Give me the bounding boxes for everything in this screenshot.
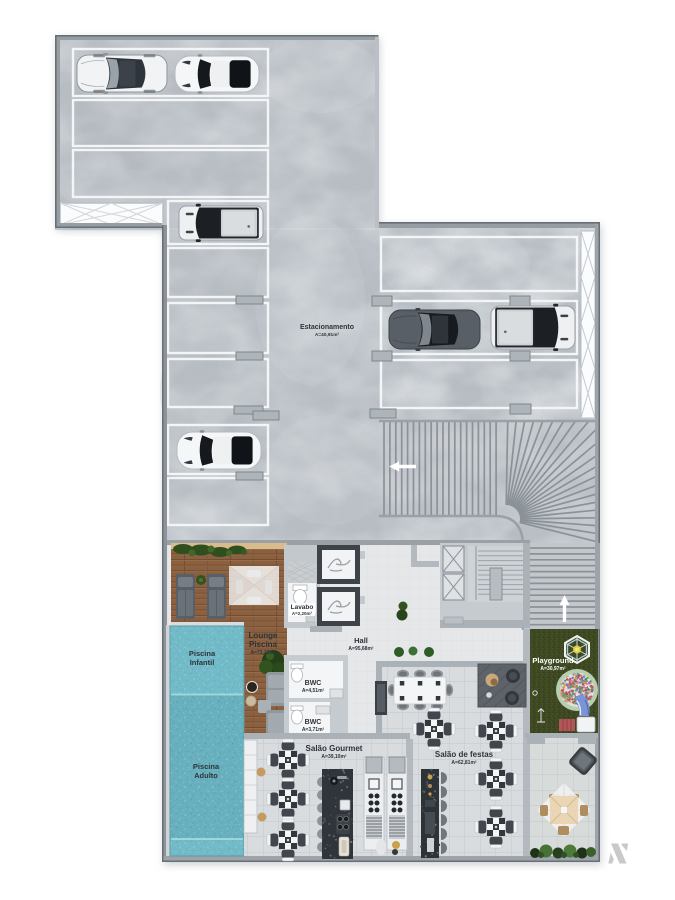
svg-text:A=95,68m²: A=95,68m² xyxy=(348,646,373,652)
svg-text:A=62,81m²: A=62,81m² xyxy=(451,760,476,766)
svg-text:A=2,20m²: A=2,20m² xyxy=(292,611,313,616)
svg-text:A=4,51m²: A=4,51m² xyxy=(302,688,325,694)
svg-text:A=30,97m²: A=30,97m² xyxy=(540,666,565,672)
svg-text:A=40,91m²: A=40,91m² xyxy=(315,332,340,338)
svg-text:Piscina: Piscina xyxy=(249,640,278,649)
svg-text:A=39,10m²: A=39,10m² xyxy=(321,754,346,760)
svg-text:A=73,22m²: A=73,22m² xyxy=(250,650,275,656)
svg-text:Infantil: Infantil xyxy=(190,658,215,667)
svg-text:Hall: Hall xyxy=(354,636,368,645)
svg-text:BWC: BWC xyxy=(305,680,322,687)
svg-text:Lavabo: Lavabo xyxy=(291,604,314,611)
svg-text:A=3,71m²: A=3,71m² xyxy=(302,727,325,733)
svg-text:Salão Gourmet: Salão Gourmet xyxy=(306,744,363,753)
svg-text:Piscina: Piscina xyxy=(189,649,216,658)
svg-text:Piscina: Piscina xyxy=(193,762,220,771)
svg-text:Adulto: Adulto xyxy=(194,771,218,780)
svg-text:BWC: BWC xyxy=(305,719,322,726)
svg-text:Playground: Playground xyxy=(532,656,574,665)
svg-text:Salão de festas: Salão de festas xyxy=(435,750,494,759)
svg-text:Lounge: Lounge xyxy=(249,631,278,640)
svg-text:Estacionamento: Estacionamento xyxy=(300,324,354,331)
